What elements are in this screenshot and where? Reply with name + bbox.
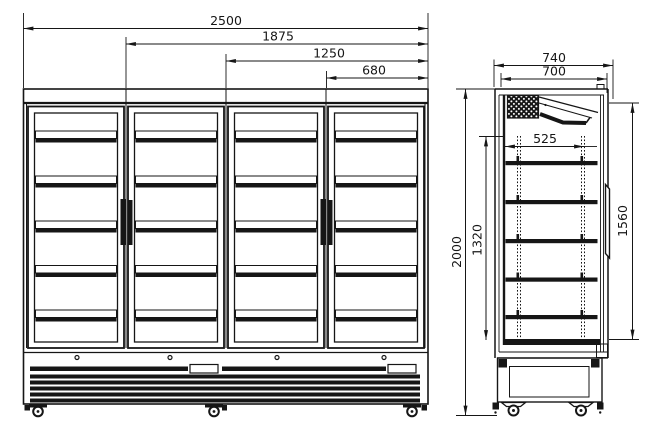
dim-door-height: 1560 xyxy=(609,103,639,340)
base-corner-right xyxy=(591,359,600,368)
grille-badge-right xyxy=(388,365,416,374)
dim-label-overall-width: 2500 xyxy=(210,13,242,28)
evaporator-coil xyxy=(508,96,539,119)
dim-two-door-span: 1250 xyxy=(226,46,428,62)
top-band-dividers xyxy=(126,89,326,103)
grille-badge-left xyxy=(190,365,218,374)
handle-door-4 xyxy=(328,200,333,245)
drip-tray xyxy=(540,114,586,123)
front-dimensions: 2500 1875 1250 680 xyxy=(24,13,429,88)
dim-door-span: 680 xyxy=(327,63,429,79)
side-casters xyxy=(493,403,604,416)
handle-door-2 xyxy=(128,200,133,245)
side-door-handle xyxy=(606,185,610,259)
drawing-svg: 2500 1875 1250 680 xyxy=(0,0,669,432)
base-corner-left xyxy=(499,359,508,368)
dim-label-door-span: 680 xyxy=(362,63,386,78)
technical-drawing-page: 2500 1875 1250 680 xyxy=(0,0,669,432)
door-3 xyxy=(228,107,324,349)
door-2 xyxy=(128,107,224,349)
door-4 xyxy=(328,107,424,349)
door-bottom-rail xyxy=(597,344,608,358)
interior-floor xyxy=(504,339,600,345)
compressor-panel xyxy=(510,367,590,398)
dim-three-door-span: 1875 xyxy=(126,29,428,45)
dim-shelf-depth: 525 xyxy=(505,131,597,147)
handle-door-1 xyxy=(121,199,126,245)
handle-door-3 xyxy=(321,199,326,245)
dim-label-interior-height: 1320 xyxy=(470,224,485,256)
kick-screws xyxy=(75,356,386,360)
air-deflector-top xyxy=(539,97,598,113)
dim-label-shelf-depth: 525 xyxy=(533,131,557,146)
side-shelves xyxy=(504,156,600,345)
dim-label-body-depth: 700 xyxy=(542,64,566,79)
dim-label-overall-height: 2000 xyxy=(449,236,464,268)
dim-label-two-door-span: 1250 xyxy=(313,46,345,61)
front-view xyxy=(24,89,429,416)
drip-tray-lip xyxy=(586,118,590,124)
dim-label-door-height: 1560 xyxy=(615,205,630,237)
dim-label-three-door-span: 1875 xyxy=(262,29,294,44)
front-casters xyxy=(25,405,428,417)
door-1 xyxy=(28,107,124,349)
deflector-rivet xyxy=(544,104,546,106)
dim-overall-width: 2500 xyxy=(24,13,429,29)
ventilation-grille xyxy=(30,365,420,403)
base-box xyxy=(498,358,603,402)
